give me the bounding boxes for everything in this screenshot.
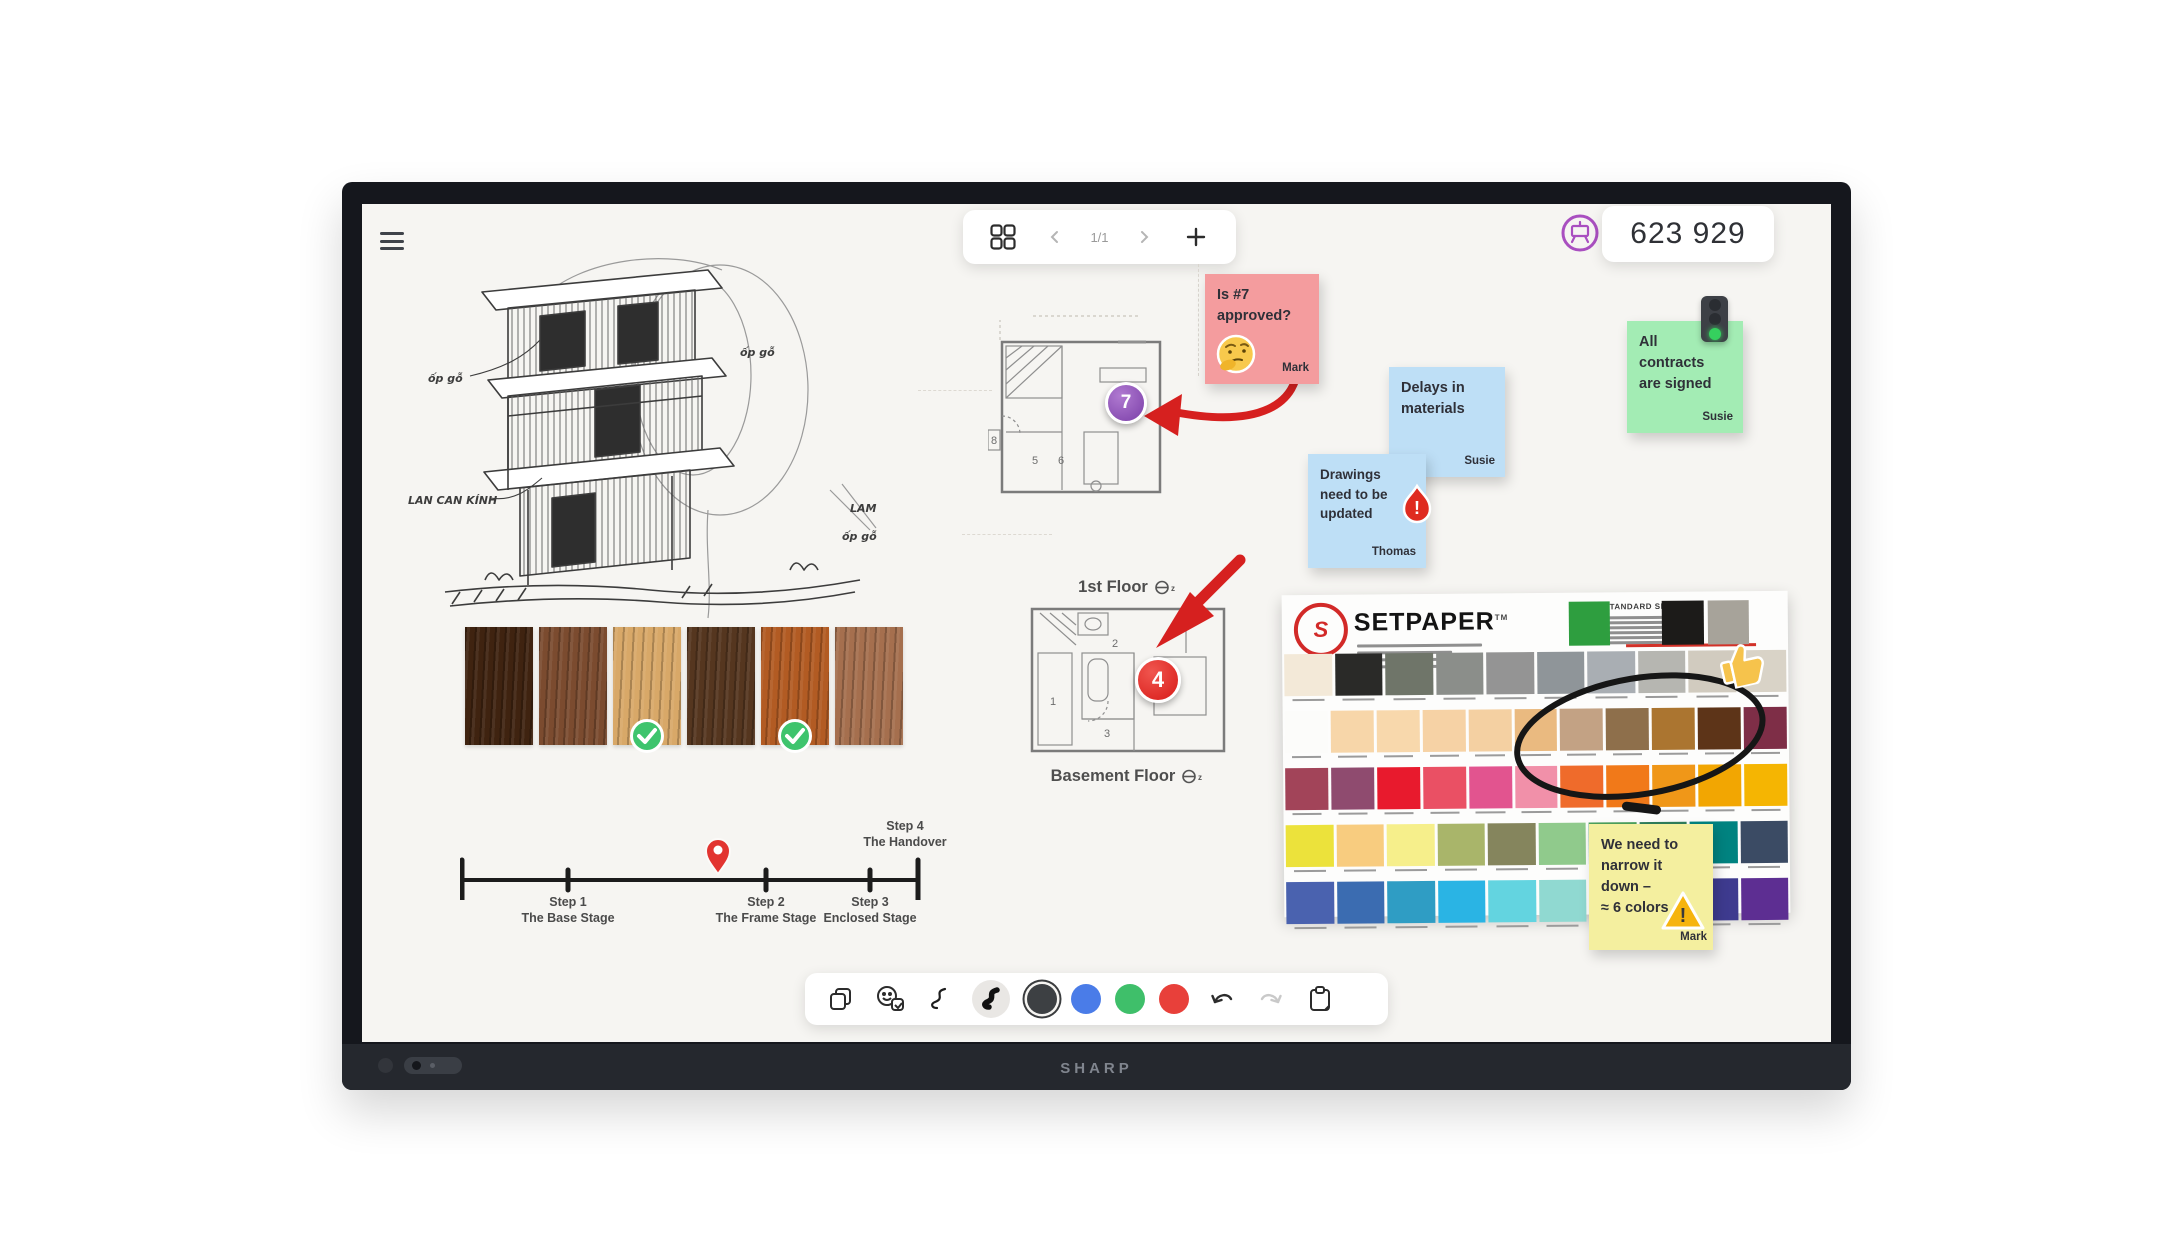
color-swatch <box>1437 823 1485 870</box>
page-toolbar: 1/1 <box>963 210 1236 264</box>
color-swatch <box>1438 880 1486 927</box>
room-number: 5 <box>1032 455 1038 467</box>
svg-text:!: ! <box>1680 905 1687 927</box>
board-grid-icon[interactable] <box>987 221 1019 253</box>
timeline-step: Step 3Enclosed Stage <box>805 894 935 927</box>
color-swatch <box>1286 882 1334 929</box>
thick-pen-icon[interactable] <box>972 980 1010 1018</box>
color-swatch <box>1285 768 1328 815</box>
color-swatch <box>1423 767 1466 814</box>
page-indicator: 1/1 <box>1090 230 1108 245</box>
header-swatch <box>1662 601 1704 645</box>
color-swatch <box>1422 710 1465 757</box>
drawing-toolbar <box>805 973 1388 1025</box>
color-swatch <box>1538 823 1586 870</box>
room-number: 6 <box>1058 455 1064 467</box>
pen-color-1[interactable] <box>1071 984 1101 1014</box>
redo-icon[interactable] <box>1255 983 1287 1015</box>
basement-floor-label: Basement Floor z <box>1028 767 1228 786</box>
room-number: 3 <box>1104 728 1110 740</box>
color-swatch <box>1387 881 1435 928</box>
note-author: Thomas <box>1372 544 1416 561</box>
house-sketch: ốp gỗ ốp gỗ LAN CAN KÍNH LAM ốp gỗ <box>390 240 910 640</box>
wood-swatch[interactable] <box>687 627 755 745</box>
color-swatch <box>1387 824 1435 871</box>
header-swatch <box>1569 601 1611 645</box>
location-pin-icon <box>706 839 730 874</box>
color-swatch <box>1336 824 1384 871</box>
setpaper-color-chart[interactable]: SETPAPERTM STANDARD SIZES <box>1282 591 1791 917</box>
dashed-guide <box>918 390 992 391</box>
svg-text:!: ! <box>1414 498 1420 518</box>
setpaper-title: SETPAPERTM <box>1354 607 1509 637</box>
color-swatch <box>1488 880 1536 927</box>
note-author: Susie <box>1464 453 1495 470</box>
color-swatch <box>1335 653 1383 700</box>
undo-icon[interactable] <box>1206 983 1238 1015</box>
pen-colors <box>1027 984 1189 1014</box>
sketch-label: ốp gỗ <box>428 372 463 385</box>
svg-text:z: z <box>1198 773 1202 782</box>
sharp-logo: SHARP <box>342 1060 1851 1077</box>
color-swatch <box>1331 767 1374 814</box>
wood-swatch[interactable] <box>835 627 903 745</box>
room-number: 1 <box>1050 696 1056 708</box>
whiteboard-canvas[interactable]: 1/1 623 929 <box>362 204 1831 1042</box>
thumbs-up-emoji <box>1709 630 1772 697</box>
color-swatch <box>1468 709 1511 756</box>
color-swatch <box>1377 767 1420 814</box>
color-swatch <box>1741 878 1789 925</box>
project-timeline: Step 1The Base Stage Step 2The Frame Sta… <box>460 830 928 950</box>
approved-check-icon <box>629 718 665 759</box>
timeline-step: Step 4The Handover <box>840 818 970 851</box>
dashed-guide <box>962 534 1052 535</box>
photo-stage: 1/1 623 929 <box>0 0 2160 1258</box>
session-code: 623 929 <box>1602 206 1774 262</box>
share-board-icon[interactable] <box>1558 211 1602 255</box>
timeline-step: Step 1The Base Stage <box>503 894 633 927</box>
add-page-button[interactable] <box>1180 221 1212 253</box>
color-swatch <box>1385 653 1433 700</box>
color-swatch <box>1337 881 1385 928</box>
urgent-flame-icon: ! <box>1396 482 1438 529</box>
sketch-label: LAN CAN KÍNH <box>408 494 497 507</box>
next-page-button[interactable] <box>1128 221 1160 253</box>
color-swatch <box>1284 654 1332 701</box>
room-number: 2 <box>1112 638 1118 650</box>
wood-swatch[interactable] <box>539 627 607 745</box>
prev-page-button[interactable] <box>1039 221 1071 253</box>
thinking-face-emoji <box>1214 332 1258 381</box>
duplicate-icon[interactable] <box>825 983 857 1015</box>
red-arrow-annotation <box>1140 540 1260 670</box>
color-swatch <box>1740 821 1788 868</box>
comment-badge-7[interactable]: 7 <box>1105 382 1147 424</box>
sketch-label: ốp gỗ <box>842 530 877 543</box>
color-swatch <box>1436 652 1484 699</box>
color-swatch <box>1376 710 1419 757</box>
pen-color-0[interactable] <box>1027 984 1057 1014</box>
note-author: Susie <box>1702 409 1733 426</box>
wood-swatch[interactable] <box>465 627 533 745</box>
pen-color-3[interactable] <box>1159 984 1189 1014</box>
room-number: 8 <box>991 435 997 447</box>
sketch-label: ốp gỗ <box>740 346 775 359</box>
sketch-label: LAM <box>850 502 877 515</box>
clipboard-icon[interactable] <box>1304 983 1336 1015</box>
color-swatch <box>1331 710 1374 757</box>
compass-icon: z <box>1181 769 1205 784</box>
sticker-emoji-icon[interactable] <box>874 983 906 1015</box>
comment-badge-4[interactable]: 4 <box>1135 657 1181 703</box>
note-author: Mark <box>1282 360 1309 377</box>
device-bottom-bezel: SHARP <box>342 1044 1851 1090</box>
color-swatch <box>1539 880 1587 927</box>
color-swatch <box>1469 766 1512 813</box>
setpaper-logo <box>1294 603 1348 657</box>
approved-check-icon <box>777 718 813 759</box>
color-swatch <box>1488 823 1536 870</box>
thin-pen-icon[interactable] <box>923 983 955 1015</box>
pen-color-2[interactable] <box>1115 984 1145 1014</box>
color-swatch <box>1286 825 1334 872</box>
color-swatch <box>1285 711 1328 758</box>
wood-swatches[interactable] <box>465 627 909 745</box>
warning-triangle-emoji: ! <box>1660 889 1706 938</box>
sharp-display-device: 1/1 623 929 <box>342 182 1851 1090</box>
traffic-light-icon <box>1701 296 1728 342</box>
